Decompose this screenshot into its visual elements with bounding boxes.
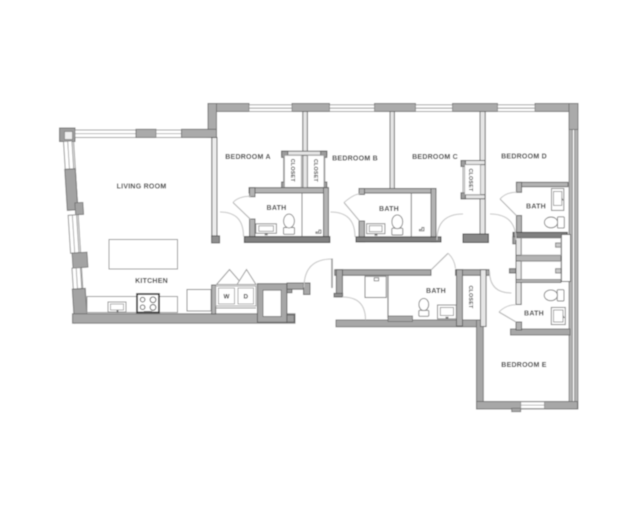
svg-text:BEDROOM B: BEDROOM B [332, 155, 378, 162]
svg-text:CLOSET: CLOSET [467, 285, 473, 309]
svg-text:BATH: BATH [526, 203, 546, 210]
svg-text:D: D [244, 294, 249, 301]
svg-text:BATH: BATH [267, 205, 287, 212]
svg-text:BEDROOM C: BEDROOM C [412, 154, 458, 161]
svg-text:LIVING ROOM: LIVING ROOM [117, 183, 167, 190]
svg-text:BEDROOM A: BEDROOM A [225, 154, 271, 161]
svg-text:CLOSET: CLOSET [289, 159, 295, 183]
svg-text:CLOSET: CLOSET [312, 159, 318, 183]
svg-text:BATH: BATH [524, 310, 544, 317]
svg-text:BEDROOM E: BEDROOM E [501, 362, 547, 369]
svg-text:BATH: BATH [426, 288, 446, 295]
svg-text:BATH: BATH [379, 206, 399, 213]
svg-text:W: W [224, 294, 230, 301]
svg-text:BEDROOM D: BEDROOM D [501, 153, 547, 160]
svg-text:CLOSET: CLOSET [467, 168, 473, 192]
svg-text:KITCHEN: KITCHEN [135, 278, 168, 285]
